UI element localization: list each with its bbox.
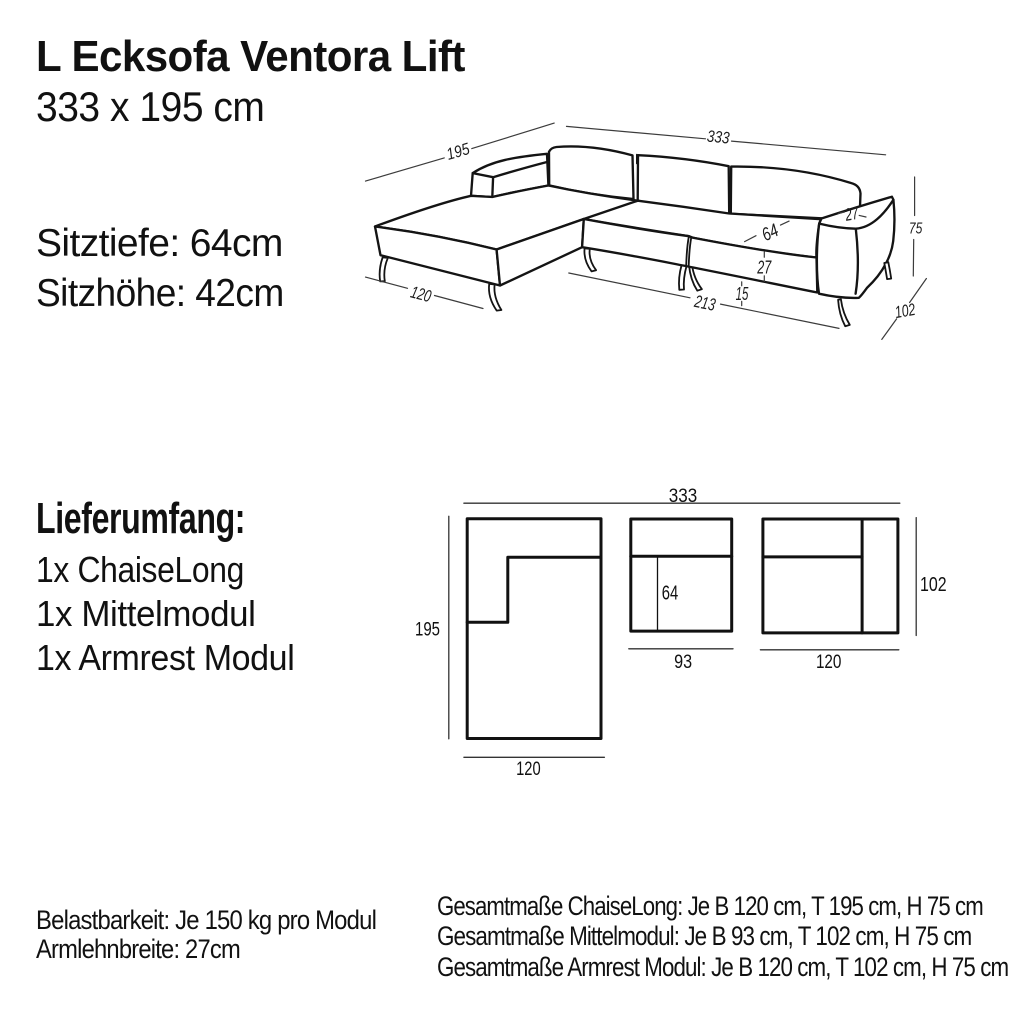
svg-text:120: 120: [816, 651, 842, 673]
svg-text:102: 102: [920, 573, 947, 596]
svg-text:75: 75: [909, 220, 922, 237]
svg-text:102: 102: [893, 300, 917, 322]
svg-text:120: 120: [516, 758, 541, 780]
svg-text:213: 213: [692, 291, 717, 315]
svg-text:15: 15: [736, 283, 749, 304]
svg-text:195: 195: [444, 140, 472, 164]
svg-text:333: 333: [706, 128, 731, 148]
svg-text:93: 93: [674, 651, 692, 673]
svg-text:27: 27: [757, 256, 772, 277]
svg-text:64: 64: [662, 582, 679, 605]
svg-text:195: 195: [415, 619, 440, 641]
svg-text:120: 120: [409, 282, 434, 306]
svg-text:333: 333: [669, 485, 698, 507]
